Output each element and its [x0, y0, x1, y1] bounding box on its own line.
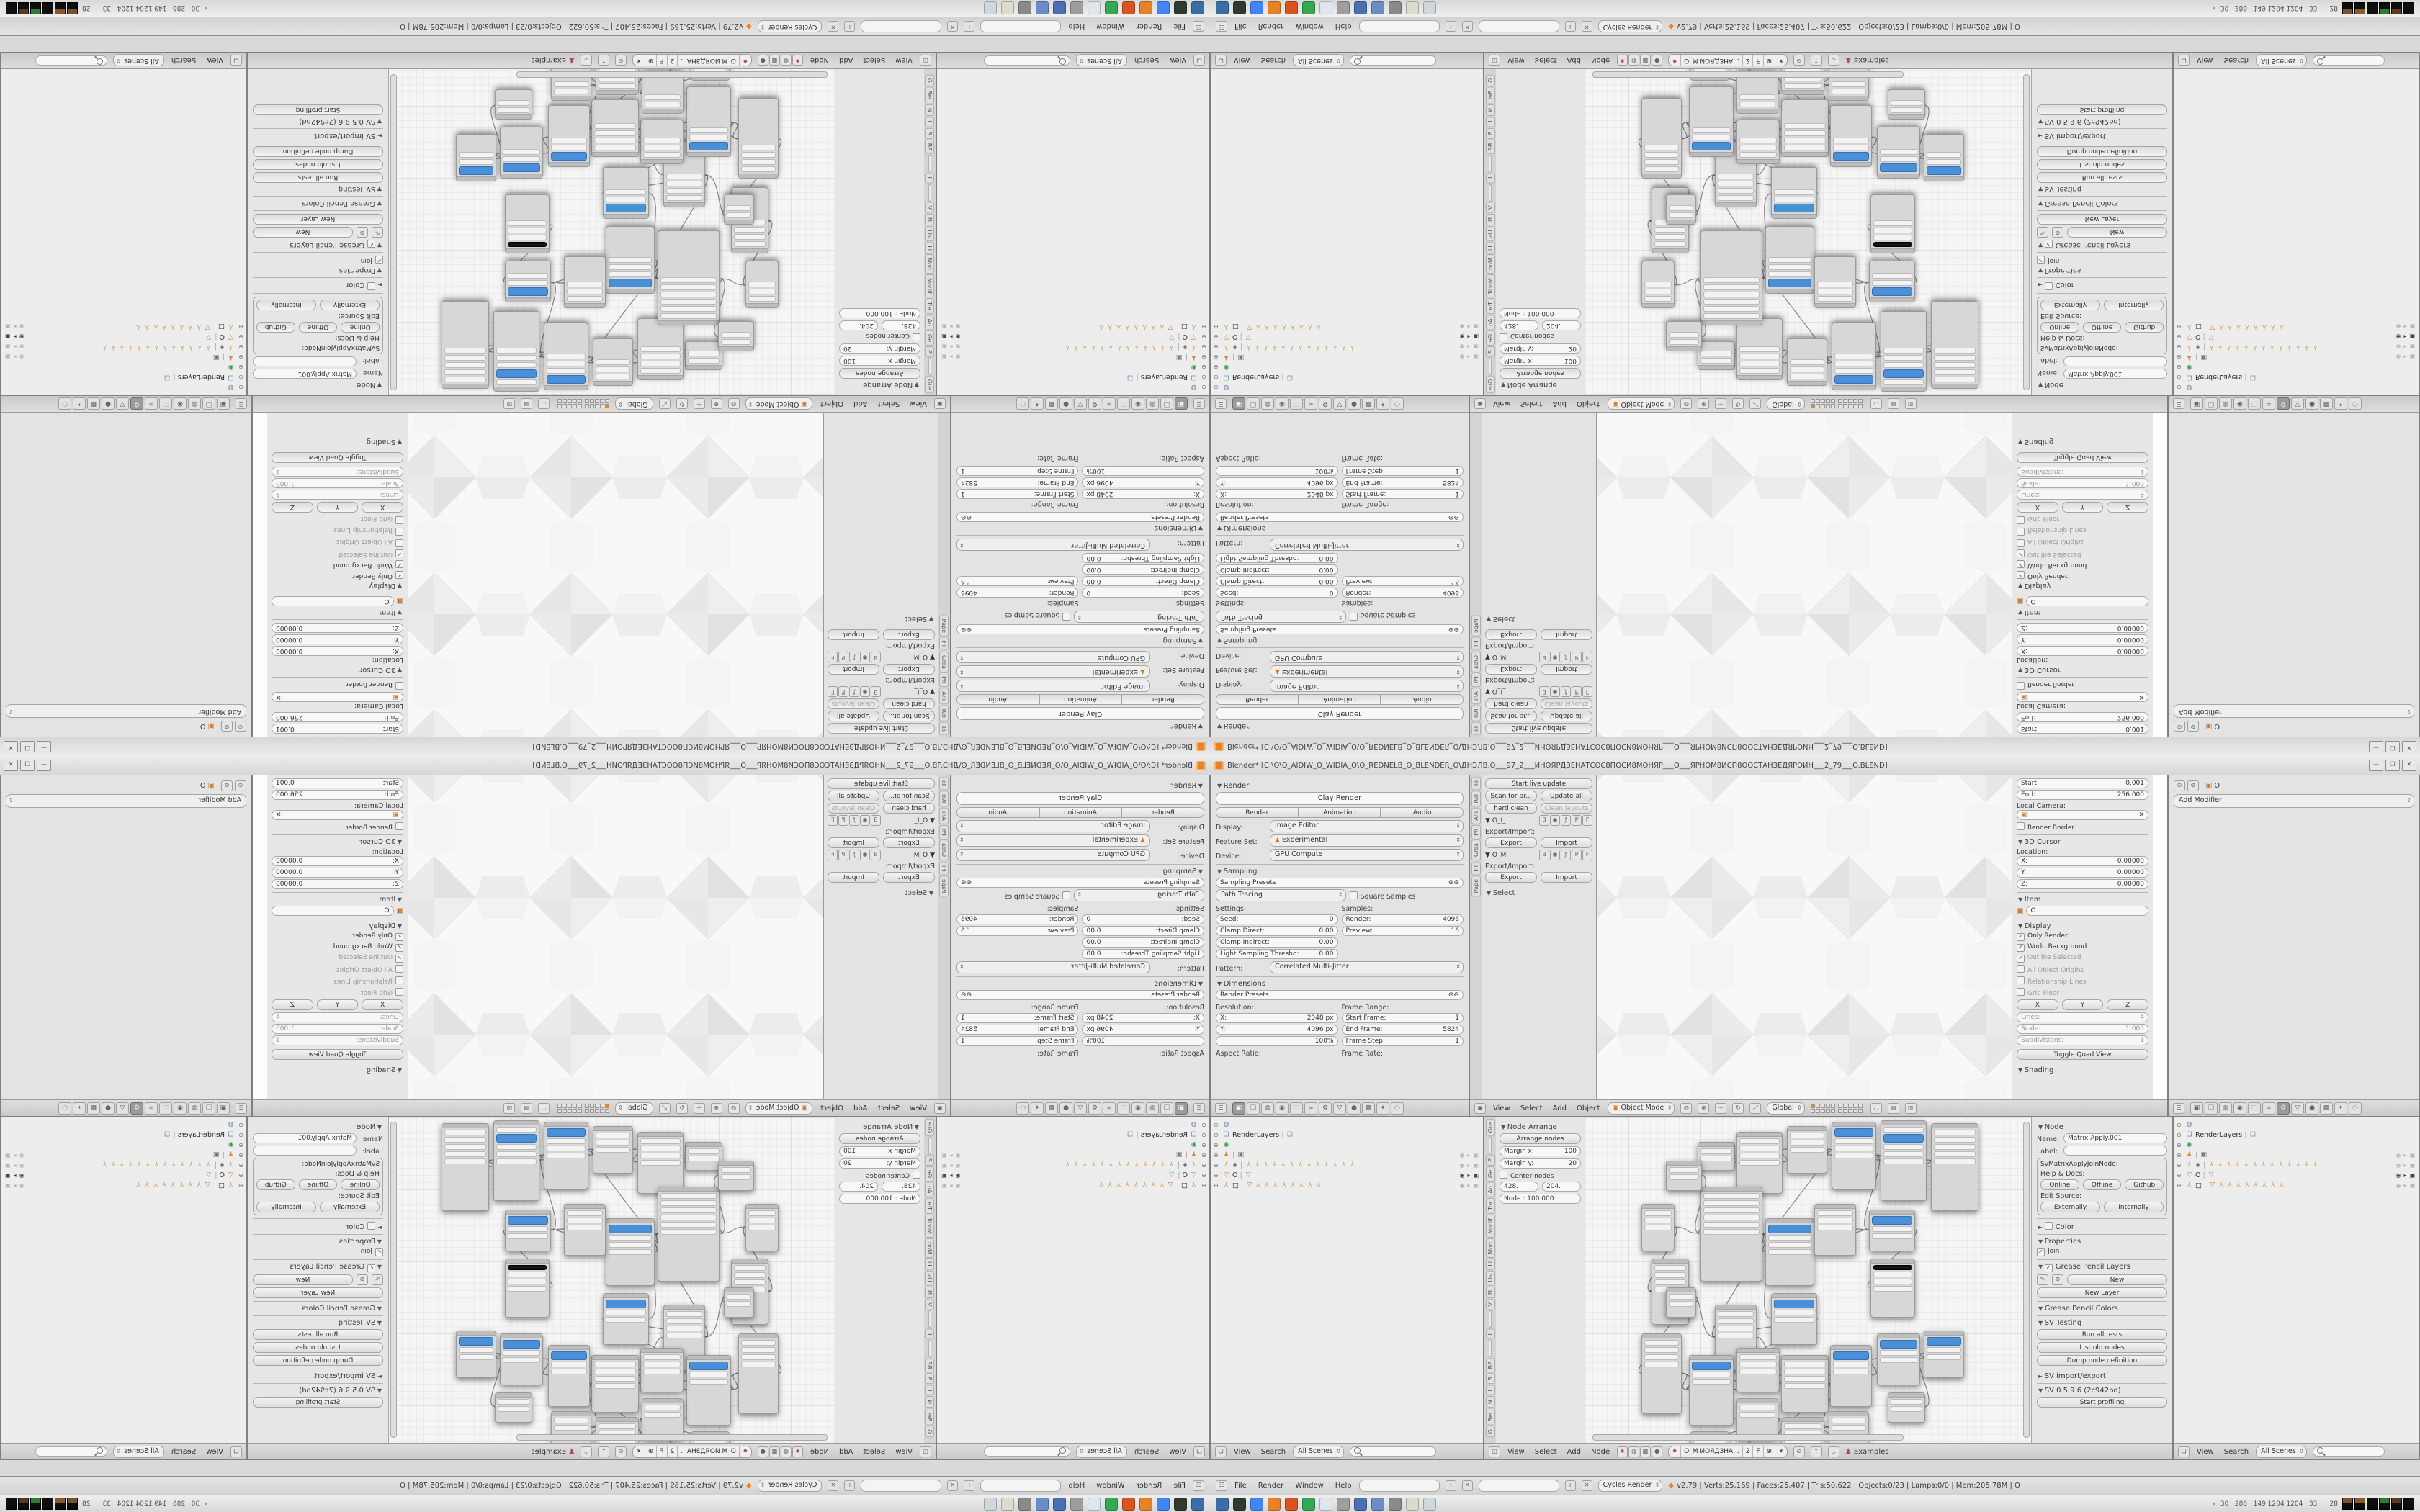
pivot-point-icon[interactable]: ⊕ — [1698, 1103, 1709, 1114]
vertical-tab-P[interactable]: P — [1486, 1155, 1495, 1166]
floppy-64-icon[interactable] — [1053, 2, 1066, 15]
clamp-direct-field[interactable]: Clamp Direct:0.00 — [1083, 926, 1205, 936]
snap-icon[interactable]: ◡ — [581, 1446, 592, 1457]
layer-dot[interactable] — [605, 405, 609, 409]
grid-scale-field[interactable]: Scale:1.000 — [2017, 1024, 2148, 1034]
vertical-tab-Mod[interactable]: Mod — [1486, 255, 1495, 274]
panel-dimensions[interactable]: Dimensions — [1217, 980, 1464, 988]
eye-icon[interactable]: ◉ — [956, 1152, 961, 1158]
material-tab[interactable]: ● — [2305, 1102, 2318, 1115]
mode-dropdown[interactable]: ▣ Object Mode — [1608, 398, 1675, 410]
fake-user-button[interactable]: F — [1752, 1446, 1762, 1457]
graph-node[interactable] — [1877, 127, 1920, 179]
graph-node[interactable] — [1771, 167, 1817, 219]
dark-app-icon[interactable] — [1174, 2, 1187, 15]
outliner-row[interactable]: ⊖◍ — [4, 1120, 243, 1130]
constraints-tab[interactable]: ∞ — [1304, 1102, 1317, 1115]
outliner-mode-dropdown[interactable]: All Scenes — [113, 55, 164, 67]
render-camera-icon[interactable]: ▣ — [5, 1172, 11, 1179]
object-tab[interactable]: ⬚ — [1117, 398, 1130, 410]
graph-node[interactable] — [1931, 1123, 1978, 1211]
menu-node[interactable]: Node — [809, 1448, 830, 1456]
visibility-icons[interactable]: ◉▸▣ — [1459, 324, 1480, 330]
panel-item[interactable]: Item — [272, 896, 402, 904]
add-layout-button[interactable]: + — [964, 1480, 974, 1491]
vertical-tab-To[interactable]: To — [1471, 722, 1481, 735]
menu-view[interactable]: View — [1492, 1104, 1512, 1112]
resolution-percent-field[interactable]: 100% — [1216, 466, 1338, 476]
resolution-x-field[interactable]: X:2048 px — [1083, 489, 1205, 499]
menu-window[interactable]: Window — [1095, 22, 1126, 30]
layer-dot[interactable] — [1843, 400, 1847, 404]
expand-icon[interactable]: ⊕ — [1200, 324, 1206, 330]
layer-group[interactable] — [1838, 400, 1863, 409]
select-arrow-icon[interactable]: ▸ — [14, 1162, 17, 1169]
graph-node[interactable] — [1781, 99, 1829, 157]
delete-scene-button[interactable]: ✕ — [828, 1480, 838, 1491]
menu-search[interactable]: Search — [1260, 57, 1287, 65]
gp-add-icon[interactable]: ⊕ — [357, 227, 368, 238]
vertical-tab-Lis[interactable]: Lis — [1486, 226, 1495, 241]
visibility-icons[interactable]: ◉▸▣ — [4, 344, 24, 351]
graph-node[interactable] — [1869, 1210, 1915, 1251]
node-label-field[interactable] — [2063, 356, 2167, 366]
layer-dot[interactable] — [605, 400, 609, 404]
panel-sv-testing[interactable]: SV Testing — [2038, 1319, 2167, 1327]
layer-dot[interactable] — [1838, 400, 1842, 404]
vertical-tab-S[interactable]: S — [926, 1373, 935, 1384]
vertical-tab-V[interactable]: V — [1486, 1299, 1495, 1310]
chrome-2-icon[interactable] — [1302, 1498, 1315, 1511]
texture-tab[interactable]: ▩ — [2320, 1102, 2333, 1115]
opengl-render-icon[interactable]: ▤ — [1888, 399, 1899, 410]
menu-render[interactable]: Render — [1257, 22, 1286, 30]
start-frame-field[interactable]: Start Frame:1 — [1342, 489, 1464, 499]
dark-app-icon[interactable] — [1233, 1498, 1246, 1511]
eye-icon[interactable]: ◉ — [1459, 354, 1464, 361]
tree-toggle-P[interactable]: P — [1572, 652, 1582, 662]
tree-toggle-B[interactable]: B — [871, 652, 881, 662]
select-arrow-icon[interactable]: ▸ — [14, 354, 17, 361]
layer-dot[interactable] — [563, 1104, 567, 1108]
display-option-all-object-origins[interactable]: All Object Origins — [2017, 538, 2148, 547]
panel-select[interactable]: Select — [828, 889, 933, 897]
hard-clean-button[interactable]: hard clean — [883, 803, 935, 814]
run-all-tests-button[interactable]: Run all tests — [253, 1329, 383, 1340]
add-scene-button[interactable]: + — [1565, 21, 1576, 32]
layer-dot[interactable] — [590, 1104, 594, 1108]
menu-search[interactable]: Search — [170, 1448, 197, 1456]
floppy-64-icon[interactable] — [1354, 1498, 1367, 1511]
graph-node[interactable] — [1870, 1259, 1915, 1318]
world-tab[interactable]: ◉ — [174, 1102, 187, 1115]
layer-dot[interactable] — [1853, 400, 1857, 404]
vertical-tab-active[interactable] — [1489, 184, 1492, 202]
vertical-tab-Fil[interactable]: Fil — [1471, 637, 1481, 650]
viewport-shading-icon[interactable]: ◍ — [1680, 399, 1692, 410]
shader-tree-icon[interactable]: ◍ — [781, 1446, 792, 1457]
pattern-dropdown[interactable]: Correlated Multi-Jitter — [956, 961, 1150, 973]
eye-icon[interactable]: ◉ — [1459, 1182, 1464, 1189]
dump-node-definition-button[interactable]: Dump node definition — [253, 1355, 383, 1366]
render-camera-icon[interactable]: ▣ — [2409, 1152, 2415, 1158]
minimize-button[interactable]: — — [2369, 741, 2383, 752]
dump-node-definition-button[interactable]: Dump node definition — [2037, 146, 2167, 157]
viewport-shading-icon[interactable]: ◍ — [1680, 1103, 1692, 1114]
tree-users-count[interactable]: 2 — [1742, 1446, 1753, 1457]
tree-toggle-B[interactable]: B — [871, 815, 881, 826]
material-tab[interactable]: ● — [102, 1102, 115, 1115]
tray-window-thumbnail[interactable] — [2342, 1498, 2353, 1510]
texture-tab[interactable]: ▩ — [87, 1102, 100, 1115]
gp-pencil-icon[interactable]: ✎ — [2037, 227, 2048, 238]
render-border-checkbox[interactable]: Render Border — [272, 822, 403, 832]
vertical-tab-BP[interactable]: BP — [926, 1358, 935, 1372]
outliner-row[interactable]: ⊕⅄+|⅄⅄⅄⅄⅄⅄⅄⅄⅄⅄⅄⅄⅄◉▸▣ — [2177, 1160, 2416, 1170]
object-tab[interactable]: ⬚ — [159, 1102, 172, 1115]
offline-button[interactable]: Offline — [2083, 322, 2122, 333]
world-tab[interactable]: ◉ — [1131, 1102, 1144, 1115]
panel-display[interactable]: Display — [272, 582, 402, 590]
start-profiling-button[interactable]: Start profiling — [2037, 104, 2167, 115]
texture-tab[interactable]: ▩ — [1362, 398, 1375, 410]
tree-browse-icon[interactable]: ♦ — [740, 1446, 751, 1457]
tree-toggle-ƒ[interactable]: ƒ — [1561, 815, 1571, 826]
vertical-tab-Bet[interactable]: Bet — [926, 1408, 935, 1426]
tree-toggle-B[interactable]: B — [1539, 652, 1549, 662]
vertical-tab-S[interactable]: S — [926, 128, 935, 139]
modifiers-tab[interactable]: ⚙ — [130, 398, 143, 410]
import-button[interactable]: Import — [828, 629, 879, 640]
layer-dot[interactable] — [573, 400, 577, 404]
object-tab[interactable]: ⬚ — [1117, 1102, 1130, 1115]
menu-view[interactable]: View — [1506, 1448, 1526, 1456]
graph-node[interactable] — [1641, 1333, 1682, 1414]
pin-icon[interactable]: ⊙ — [235, 780, 246, 791]
cursor-z-field[interactable]: Z:0.00000 — [2017, 879, 2148, 889]
compositing-tree-icon[interactable]: ▩ — [769, 55, 780, 66]
graph-node[interactable] — [1888, 89, 1925, 120]
render-camera-icon[interactable]: ▣ — [941, 334, 947, 341]
vertical-tab-Fil[interactable]: Fil — [1471, 862, 1481, 875]
layer-dot[interactable] — [1831, 1104, 1835, 1108]
editor-type-icon[interactable]: ❏ — [1215, 55, 1227, 66]
eye-icon[interactable]: ◉ — [1459, 324, 1464, 330]
arrange-val1-field[interactable]: 428. — [1500, 320, 1538, 330]
display-option-world-background[interactable]: ✓World Background — [2017, 943, 2148, 952]
animation-button[interactable]: Animation — [1299, 807, 1381, 818]
graph-node[interactable] — [745, 261, 779, 308]
graph-node[interactable] — [1869, 261, 1915, 302]
margin-x-field[interactable]: Margin x:100 — [1500, 356, 1581, 366]
graph-node[interactable] — [1877, 1333, 1920, 1385]
render-camera-icon[interactable]: ▣ — [1473, 1162, 1479, 1169]
layer-dot[interactable] — [595, 405, 599, 409]
orientation-dropdown[interactable]: Global — [1767, 1102, 1804, 1115]
panel-color[interactable]: Color — [2038, 1222, 2167, 1231]
panel-node[interactable]: Node — [253, 1123, 382, 1131]
vertical-tab-Ge[interactable]: Ge — [926, 330, 935, 346]
notepad-icon[interactable] — [1319, 2, 1332, 15]
expand-icon[interactable]: ▼ — [1485, 817, 1490, 824]
local-camera-field[interactable]: ▣✕ — [272, 810, 403, 820]
pattern-dropdown[interactable]: Correlated Multi-Jitter — [956, 539, 1150, 551]
delete-scene-button[interactable]: ✕ — [1582, 21, 1592, 32]
constraints-tab[interactable]: ∞ — [1304, 398, 1317, 410]
editor-type-icon[interactable]: ◫ — [920, 55, 931, 66]
close-button[interactable]: ✕ — [2402, 760, 2416, 771]
vertical-tab-P[interactable]: P — [926, 346, 935, 357]
object-tab[interactable]: ⬚ — [1290, 398, 1303, 410]
blender-icon[interactable] — [1268, 1498, 1281, 1511]
layer-dot[interactable] — [1831, 400, 1835, 404]
graph-node[interactable] — [1666, 194, 1696, 225]
outliner-row[interactable]: ⊕◉ — [4, 362, 243, 372]
outliner-search-field[interactable] — [2313, 1446, 2385, 1457]
modifiers-tab[interactable]: ⚙ — [1088, 398, 1101, 410]
select-arrow-icon[interactable]: ▸ — [1467, 324, 1470, 330]
physics-tab[interactable]: ◌ — [1391, 398, 1404, 410]
panel-select[interactable]: Select — [1487, 889, 1592, 897]
preview-samples-field[interactable]: Preview:16 — [956, 576, 1079, 586]
layer-dot[interactable] — [573, 1104, 577, 1108]
arrange-val1-field[interactable]: 428. — [882, 1182, 920, 1192]
grid-scale-field[interactable]: Scale:1.000 — [2017, 478, 2148, 488]
graph-node[interactable] — [686, 1355, 731, 1426]
graph-node[interactable] — [1830, 105, 1872, 167]
grid-subdivisions-field[interactable]: Subdivisions:1 — [272, 1035, 403, 1045]
display-option-relationship-lines[interactable]: Relationship Lines — [2017, 976, 2148, 986]
expand-icon[interactable]: ⊕ — [2177, 364, 2183, 371]
layer-dot[interactable] — [578, 405, 582, 409]
panel-node[interactable]: Node — [2038, 1123, 2167, 1131]
orange-app-icon[interactable] — [1122, 2, 1135, 15]
expand-icon[interactable]: ⊕ — [1214, 1182, 1220, 1189]
panel-sv-version[interactable]: SV 0.5.9.6 (2c942bd) — [253, 1387, 382, 1395]
info-editor-icon[interactable]: ☷ — [1193, 1480, 1204, 1491]
vertical-tab-BP[interactable]: BP — [1486, 1358, 1495, 1372]
new-layer-button[interactable]: New Layer — [2037, 214, 2167, 225]
vertical-tab-L[interactable]: L — [1486, 117, 1495, 127]
externally-button[interactable]: Externally — [320, 1202, 380, 1212]
panel-properties[interactable]: Properties — [253, 1238, 382, 1246]
sampling-presets-field[interactable]: Sampling Presets⊕⊖ — [956, 624, 1204, 634]
graph-node[interactable] — [637, 318, 684, 380]
menu-view[interactable]: View — [2195, 1448, 2215, 1456]
vertical-tab-Modif[interactable]: Modif — [926, 1215, 935, 1238]
import-button[interactable]: Import — [1541, 664, 1592, 675]
expand-icon[interactable]: ⊕ — [237, 1182, 243, 1189]
export-button[interactable]: Export — [883, 837, 935, 848]
item-name-field[interactable]: O — [2026, 906, 2148, 916]
panel-select[interactable]: Select — [828, 615, 933, 623]
snap-magnet-icon[interactable]: ◡ — [1870, 1103, 1882, 1114]
expand-icon[interactable]: ⊖ — [1214, 1122, 1220, 1128]
internally-button[interactable]: Internally — [2104, 300, 2164, 310]
tray-window-thumbnail[interactable] — [2391, 1498, 2402, 1510]
editor-type-icon[interactable]: ❏ — [1193, 1446, 1205, 1457]
particles-tab[interactable]: ✦ — [2334, 398, 2347, 410]
seed-field[interactable]: Seed:0 — [1216, 588, 1338, 598]
eye-icon[interactable]: ◉ — [19, 354, 24, 361]
panel-render[interactable]: Render — [1217, 722, 1464, 730]
graph-node[interactable] — [1787, 338, 1827, 386]
modifiers-tab[interactable]: ⚙ — [1319, 1102, 1332, 1115]
start-frame-field[interactable]: Start Frame:1 — [956, 1013, 1079, 1023]
graph-node[interactable] — [1931, 301, 1978, 389]
render-border-checkbox[interactable]: Render Border — [272, 680, 403, 690]
menu-help[interactable]: Help — [1067, 1482, 1086, 1490]
minimize-button[interactable]: — — [2369, 760, 2383, 771]
render-engine-dropdown[interactable]: Cycles Render — [1598, 1480, 1663, 1492]
select-arrow-icon[interactable]: ▸ — [950, 1182, 953, 1189]
layer-dot[interactable] — [1821, 400, 1825, 404]
minimize-button[interactable]: — — [37, 760, 51, 771]
layer-dot[interactable] — [1853, 1104, 1857, 1108]
calculator-icon[interactable] — [1018, 2, 1031, 15]
graph-node[interactable] — [593, 1126, 633, 1174]
editor-type-icon[interactable]: ☰ — [2173, 1103, 2184, 1114]
grid-z-button[interactable]: Z — [272, 502, 313, 513]
data-tab[interactable]: ▽ — [2291, 1102, 2304, 1115]
outliner-row[interactable]: ⊖◍ — [2177, 382, 2416, 392]
graph-node[interactable] — [685, 1142, 722, 1171]
chrome-2-icon[interactable] — [1105, 1498, 1118, 1511]
margin-y-field[interactable]: Margin y:20 — [839, 1158, 920, 1169]
add-scene-button[interactable]: + — [1565, 1480, 1576, 1491]
outliner-row[interactable]: ⊖◍ — [4, 382, 243, 392]
panel-gp-colors[interactable]: Grease Pencil Colors — [253, 199, 382, 207]
visibility-icons[interactable]: ◉▸▣ — [4, 1182, 24, 1189]
scene-field[interactable] — [861, 20, 941, 32]
clip-start-field[interactable]: Start:0.001 — [2017, 724, 2148, 734]
context-icon[interactable]: ⚙ — [2187, 780, 2199, 791]
layer-group[interactable] — [1811, 400, 1835, 409]
menu-node[interactable]: Node — [809, 57, 830, 65]
panel-sv-version[interactable]: SV 0.5.9.6 (2c942bd) — [253, 117, 382, 125]
vertical-tab-active[interactable] — [928, 1340, 931, 1357]
outliner-search-field[interactable] — [984, 1446, 1070, 1457]
chrome-icon[interactable] — [1157, 1498, 1170, 1511]
layer-dot[interactable] — [573, 405, 577, 409]
list-old-nodes-button[interactable]: List old nodes — [253, 159, 383, 170]
render-camera-icon[interactable]: ▣ — [5, 1152, 11, 1158]
expand-icon[interactable]: ⊖ — [1214, 384, 1220, 391]
new-tree-button[interactable]: ⊕ — [1763, 55, 1775, 66]
mode-dropdown[interactable]: ▣ Object Mode — [745, 1102, 813, 1115]
outliner-row[interactable]: ⊕❏RenderLayers|❏ — [940, 372, 1206, 382]
menu-add[interactable]: Add — [1551, 1104, 1568, 1112]
export-button[interactable]: Export — [883, 664, 935, 675]
display-option-grid-floor[interactable]: Grid Floor — [2017, 515, 2148, 524]
expand-icon[interactable]: ⊕ — [1214, 324, 1220, 330]
local-camera-field[interactable]: ▣✕ — [2017, 692, 2148, 702]
panel-sampling[interactable]: Sampling — [1217, 868, 1464, 876]
node-name-field[interactable]: Matrix Apply.001 — [2063, 1133, 2167, 1143]
window-titlebar[interactable]: Blender* [C:\O\O_AIDIW_O_WIDIA_O\O_REDNE… — [0, 737, 1210, 756]
visibility-icons[interactable]: ◉▸▣ — [2396, 1162, 2416, 1169]
layer-dot[interactable] — [600, 405, 604, 409]
square-samples-checkbox[interactable]: Square Samples — [956, 891, 1071, 901]
render-camera-icon[interactable]: ▣ — [1473, 334, 1479, 341]
visibility-icons[interactable]: ◉▸▣ — [940, 1182, 961, 1189]
menu-add[interactable]: Add — [852, 400, 869, 408]
notepad-2-icon[interactable] — [1001, 1498, 1014, 1511]
import-button[interactable]: Import — [1541, 837, 1592, 848]
cursor-x-field[interactable]: X:0.00000 — [272, 856, 403, 866]
node-editor-vscrollbar[interactable] — [2023, 1122, 2030, 1438]
pattern-dropdown[interactable]: Correlated Multi-Jitter — [1270, 961, 1464, 973]
margin-x-field[interactable]: Margin x:100 — [839, 1146, 920, 1156]
scan-for-props-button[interactable]: Scan for pr... — [1485, 711, 1537, 721]
tree-toggle-F[interactable]: F — [1582, 850, 1592, 860]
join-checkbox[interactable]: ✓Join — [2037, 256, 2167, 264]
graph-node[interactable] — [1814, 1204, 1856, 1256]
cursor-y-field[interactable]: Y:0.00000 — [2017, 868, 2148, 878]
delete-scene-button[interactable]: ✕ — [828, 21, 838, 32]
chrome-icon[interactable] — [1250, 2, 1263, 15]
layer-dot[interactable] — [1826, 405, 1830, 409]
render-camera-icon[interactable]: ▣ — [941, 1172, 947, 1179]
clip-end-field[interactable]: End:256.000 — [2017, 790, 2148, 800]
editor-type-icon[interactable]: ☰ — [1215, 1103, 1227, 1114]
visibility-icons[interactable]: ◉▸▣ — [2396, 354, 2416, 361]
menu-select[interactable]: Select — [1533, 57, 1559, 65]
panel-sv-version[interactable]: SV 0.5.9.6 (2c942bd) — [2038, 1387, 2167, 1395]
delete-scene-button[interactable]: ✕ — [1582, 1480, 1592, 1491]
graph-node[interactable] — [1924, 1331, 1964, 1378]
menu-search[interactable]: Search — [1260, 1448, 1287, 1456]
display-option-only-render[interactable]: ✓Only Render — [272, 932, 403, 941]
object-tab[interactable]: ⬚ — [2248, 398, 2261, 410]
object-tab[interactable]: ⬚ — [1290, 1102, 1303, 1115]
seed-field[interactable]: Seed:0 — [1083, 588, 1205, 598]
device-dropdown[interactable]: GPU Compute — [1270, 651, 1464, 663]
internally-button[interactable]: Internally — [256, 1202, 316, 1212]
export-button[interactable]: Export — [883, 629, 935, 640]
layer-dot[interactable] — [1838, 1104, 1842, 1108]
display-option-outline-selected[interactable]: ✓Outline Selected — [272, 954, 403, 963]
screen-layout-field[interactable] — [1359, 1480, 1440, 1492]
grid-scale-field[interactable]: Scale:1.000 — [272, 478, 403, 488]
display-option-grid-floor[interactable]: Grid Floor — [272, 515, 403, 524]
tree-toggle-◉[interactable]: ◉ — [860, 850, 870, 860]
context-icon[interactable]: ⚙ — [221, 721, 233, 732]
vertical-tab-Grea[interactable]: Grea — [1471, 651, 1481, 672]
graph-node[interactable] — [718, 1161, 754, 1191]
expand-icon[interactable]: ⊕ — [1214, 374, 1220, 381]
clamp-direct-field[interactable]: Clamp Direct:0.00 — [1216, 926, 1338, 936]
resolution-percent-field[interactable]: 100% — [1083, 1036, 1205, 1046]
data-tab[interactable]: ▽ — [1333, 1102, 1346, 1115]
new-layer-button[interactable]: New Layer — [253, 1287, 383, 1298]
visibility-icons[interactable]: ◉▸▣ — [940, 344, 961, 351]
render-camera-icon[interactable]: ▣ — [2409, 1172, 2415, 1179]
layer-dot[interactable] — [578, 400, 582, 404]
texture-tree-icon[interactable]: ● — [1652, 1446, 1662, 1457]
material-tab[interactable]: ● — [2305, 398, 2318, 410]
vertical-tab-L[interactable]: L — [926, 173, 935, 183]
cursor-y-field[interactable]: Y:0.00000 — [2017, 634, 2148, 644]
notepad-icon[interactable] — [1088, 2, 1101, 15]
menu-add[interactable]: Add — [1566, 57, 1582, 65]
export-button[interactable]: Export — [1485, 629, 1537, 640]
vertical-tab-Gre[interactable]: Gre — [1486, 1119, 1495, 1136]
cursor-z-field[interactable]: Z:0.00000 — [272, 879, 403, 889]
node-value-field[interactable]: Node : 100.000 — [1500, 1194, 1581, 1204]
display-option-only-render[interactable]: ✓Only Render — [2017, 932, 2148, 941]
editor-type-icon[interactable]: ☰ — [1193, 1103, 1205, 1114]
